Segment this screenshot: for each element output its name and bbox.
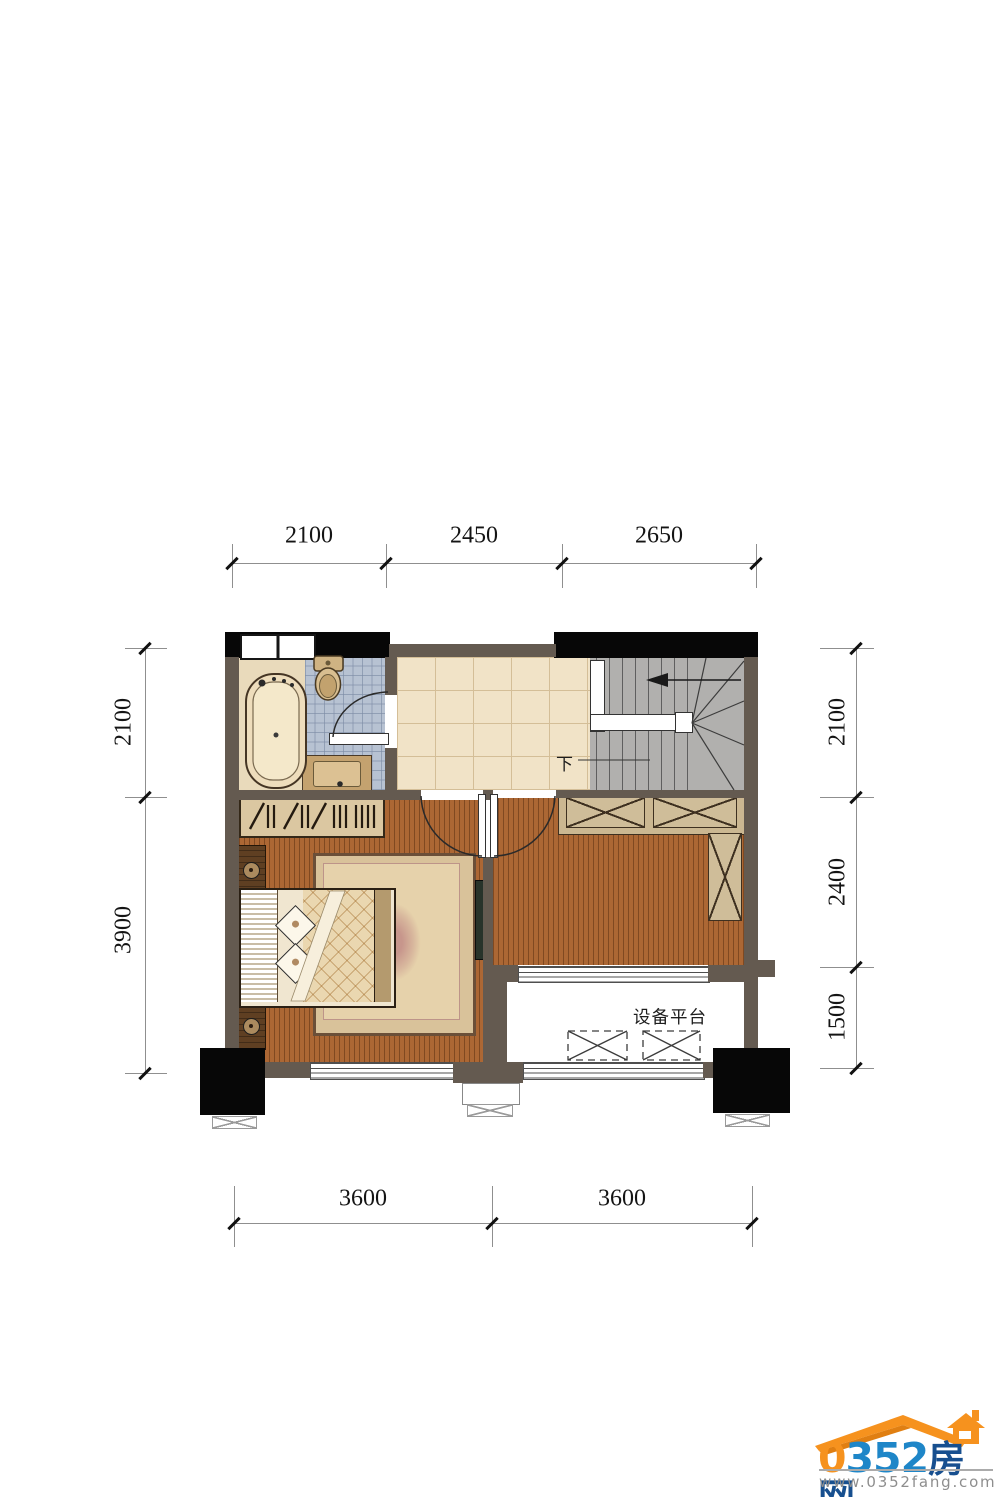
logo-divider-line <box>819 1469 993 1471</box>
stair-direction-arrow <box>646 673 741 687</box>
plan-linework-overlay <box>0 0 1000 1497</box>
logo-website: www.0352fang.com <box>819 1473 996 1491</box>
stairs-down-label: 下 <box>556 750 573 775</box>
ac-unit-symbols <box>568 1031 700 1060</box>
right-room-door-arc <box>494 796 555 856</box>
vanity-faucet <box>337 781 343 787</box>
closet-hanger-symbols <box>250 803 374 829</box>
bedroom-door-arc <box>421 796 482 856</box>
equipment-platform-label: 设备平台 <box>633 1004 707 1029</box>
bathroom-door-arc <box>333 692 388 737</box>
floor-plan-canvas: 2100 2450 2650 3600 3600 2100 3900 2100 … <box>0 0 1000 1497</box>
bed-fold-sheet <box>291 891 345 1001</box>
toilet <box>314 656 343 700</box>
stair-winder-lines <box>692 658 744 790</box>
bathtub <box>246 674 306 788</box>
